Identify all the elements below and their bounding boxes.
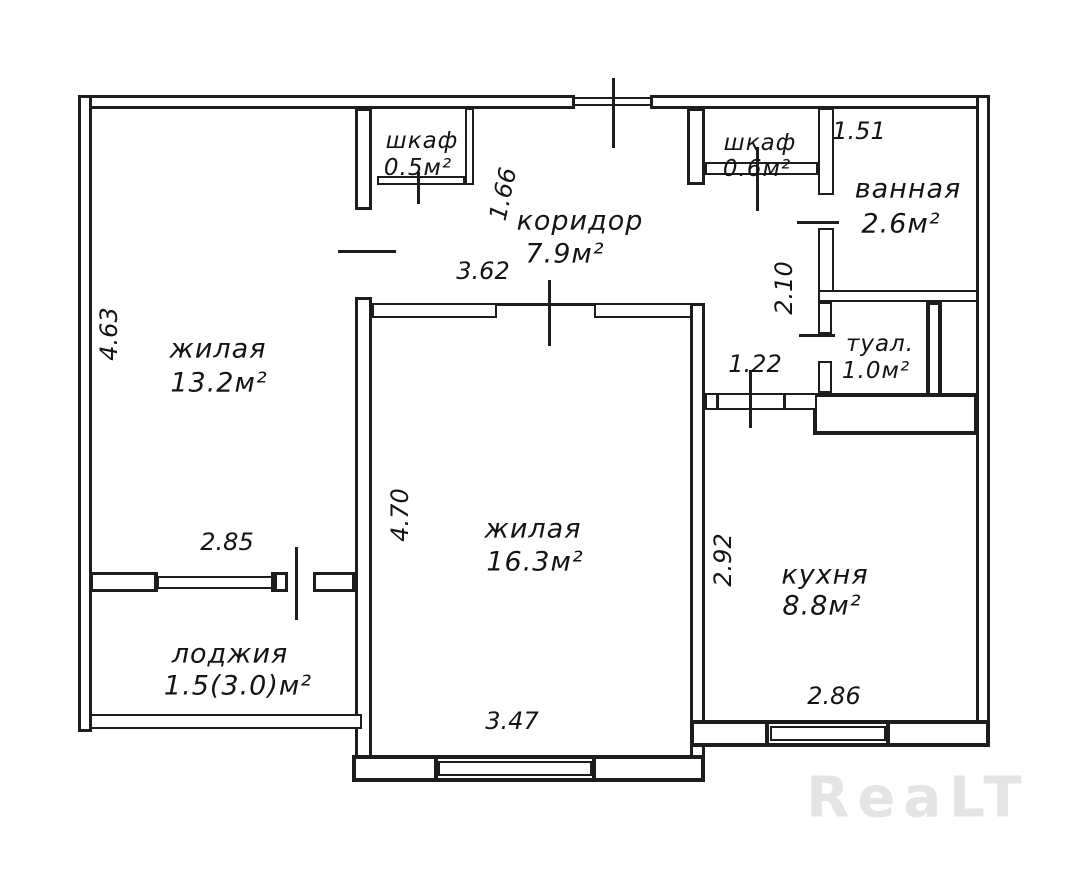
kitchen-window-jamb [765,720,769,747]
dimension-1-22: 1.22 [728,350,781,378]
room-label-closet2-name: шкаф [724,130,797,156]
entrance-door-tick [612,78,615,148]
room-label-living2-name: жилая [485,514,582,545]
room-label-toilet-area: 1.0м² [842,358,910,384]
vent-shaft-line [926,302,930,394]
wall-outer-right [976,95,990,747]
vent-shaft-line [938,302,942,394]
living1-door-tick [338,250,396,253]
floor-plan: жилая 13.2м² жилая 16.3м² коридор 7.9м² … [0,0,1080,878]
room-label-living1-area: 13.2м² [170,368,267,399]
toilet-left-wall-upper [818,302,832,334]
dimension-4-63: 4.63 [95,307,123,360]
living2-window-jamb [434,755,438,782]
closet1-right-wall [465,108,474,185]
room-label-living2-area: 16.3м² [486,547,583,578]
bathroom-door-tick [797,221,839,224]
room-label-corridor-area: 7.9м² [525,239,604,270]
kitchen-passage-wall [705,393,817,410]
dimension-1-51: 1.51 [832,117,885,145]
balcony-wall-stub [274,572,288,592]
room-label-toilet-name: туал. [846,331,914,357]
balcony-window-jamb [154,572,158,592]
kitchen-door-tick [749,370,752,428]
dimension-3-62: 3.62 [456,257,509,285]
closet2-left-wall [687,108,705,185]
wall-outer-top-left [78,95,575,109]
dimension-2-92: 2.92 [709,533,737,586]
wall-living2-kitchen [690,303,705,782]
room-label-kitchen-name: кухня [781,560,868,591]
room-label-bathroom-area: 2.6м² [861,209,940,240]
wall-corridor-living2-left [372,303,497,318]
balcony-window [157,576,274,589]
dimension-2-85: 2.85 [200,528,253,556]
room-label-living1-name: жилая [170,334,267,365]
corridor-door-lintel [497,303,594,306]
room-label-corridor-name: коридор [517,206,644,237]
room-label-closet1-area: 0.5м² [384,155,452,181]
bathroom-bottom-wall [818,290,978,302]
toilet-bottom-thick-wall [813,393,978,435]
realt-watermark: ReaLT [806,766,1030,831]
kitchen-window [770,726,886,741]
room-label-bathroom-name: ванная [855,174,962,205]
wall-outer-top-right [650,95,990,109]
room-label-closet2-area: 0.6м² [723,156,791,182]
living2-door-tick [548,280,551,346]
loggia-rail [90,714,362,729]
room-label-loggia-area: 1.5(3.0)м² [164,671,312,702]
wall-living1-corridor-upper [355,108,372,210]
wall-outer-left [78,95,92,732]
dimension-3-47: 3.47 [485,707,538,735]
dimension-2-10: 2.10 [770,261,798,314]
living2-window-jamb [592,755,596,782]
toilet-door-tick [799,334,835,337]
toilet-left-wall-lower [818,361,832,393]
wall-corridor-living2-right [594,303,705,318]
room-label-closet1-name: шкаф [386,128,459,154]
balcony-wall-right [313,572,355,592]
dimension-2-86: 2.86 [807,682,860,710]
kitchen-door-jamb [783,393,786,410]
balcony-wall-left [90,572,157,592]
wall-living1-living2 [355,297,372,782]
kitchen-door-jamb [716,393,719,410]
balcony-door-tick [295,547,298,620]
dimension-4-70: 4.70 [386,488,414,541]
room-label-kitchen-area: 8.8м² [782,591,861,622]
vent-shaft-cap [926,302,942,305]
room-label-loggia-name: лоджия [172,639,289,670]
kitchen-window-jamb [886,720,890,747]
living2-window [438,761,592,776]
